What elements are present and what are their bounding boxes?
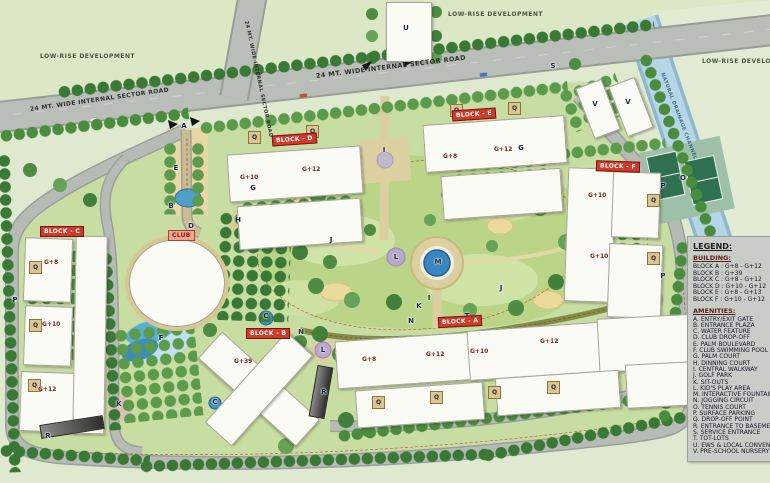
drop-off-pad: Q — [647, 194, 660, 207]
height-label: G+12 — [302, 166, 320, 173]
tree-row-boulevard-right — [192, 143, 205, 215]
low-rise-label-left: LOW-RISE DEVELOPMENT — [40, 53, 135, 60]
amenity-marker: O — [678, 173, 688, 183]
amenity-marker: G — [516, 143, 526, 153]
drop-off-pad: Q — [488, 386, 501, 399]
height-label: G+10 — [588, 192, 606, 199]
badge-block-f: BLOCK - F — [596, 160, 640, 173]
height-label: G+12 — [426, 351, 444, 358]
amenity-marker: C — [261, 311, 271, 321]
amenity-marker: V — [590, 99, 600, 109]
height-label: G+8 — [44, 259, 58, 266]
block-c-building-2 — [23, 305, 73, 367]
amenity-marker: R — [319, 387, 329, 397]
amenity-marker: S — [548, 61, 558, 71]
badge-club: CLUB — [168, 230, 195, 241]
height-label: G+8 — [443, 153, 457, 160]
amenity-marker: K — [414, 301, 424, 311]
amenity-marker: M — [433, 257, 443, 267]
club-building — [129, 239, 225, 327]
amenity-marker: E — [171, 163, 181, 173]
block-d-building-2 — [237, 198, 364, 251]
legend-building-item: BLOCK F : G+10 - G+12 — [693, 297, 767, 304]
low-rise-label-top: LOW-RISE DEVELOPMENT — [448, 11, 543, 18]
low-rise-label-right: LOW-RISE DEVELOPMENT — [702, 58, 770, 65]
legend-building-heading: BUILDING: — [693, 254, 767, 262]
badge-block-c: BLOCK - C — [40, 226, 84, 237]
amenity-marker: R — [43, 431, 53, 441]
amenity-marker: L — [391, 252, 401, 262]
drop-off-pad: Q — [29, 319, 42, 332]
height-label: G+39 — [234, 358, 252, 365]
legend-panel: LEGEND: BUILDING: BLOCK A : G+8 - G+12BL… — [687, 236, 770, 462]
amenity-marker: I — [424, 293, 434, 303]
block-e-building-2 — [441, 168, 564, 220]
amenity-marker: N — [296, 327, 306, 337]
amenity-marker: G — [248, 183, 258, 193]
height-label: G+10 — [42, 321, 60, 328]
drop-off-pad: Q — [647, 252, 660, 265]
amenity-marker: H — [233, 215, 243, 225]
legend-building-list: BLOCK A : G+8 - G+12BLOCK B : G+39BLOCK … — [693, 264, 767, 304]
amenity-marker: P — [10, 295, 20, 305]
site-master-plan: LOW-RISE DEVELOPMENT LOW-RISE DEVELOPMEN… — [0, 0, 770, 483]
legend-amenities-heading: AMENITIES: — [693, 307, 767, 315]
height-label: G+12 — [38, 386, 56, 393]
amenity-marker: I — [379, 145, 389, 155]
amenity-marker: B — [166, 201, 176, 211]
amenity-marker: F — [156, 333, 166, 343]
drop-off-pad: Q — [547, 381, 560, 394]
height-label: G+12 — [540, 338, 558, 345]
drop-off-pad: Q — [508, 102, 521, 115]
amenity-marker: U — [401, 23, 411, 33]
drop-off-pad: Q — [372, 396, 385, 409]
amenity-marker: V — [623, 97, 633, 107]
amenity-marker: J — [326, 235, 336, 245]
drop-off-pad: Q — [430, 391, 443, 404]
height-label: G+8 — [362, 356, 376, 363]
amenity-marker: A — [179, 121, 189, 131]
height-label: G+10 — [590, 253, 608, 260]
legend-title: LEGEND: — [693, 242, 767, 251]
amenity-marker: C — [210, 397, 220, 407]
block-e-building-1 — [422, 115, 567, 173]
height-label: G+12 — [494, 146, 512, 153]
amenity-marker: P — [658, 271, 668, 281]
legend-amenities-list: A. ENTRY/EXIT GATEB. ENTRANCE PLAZAC. WA… — [693, 317, 767, 456]
block-c-building-4 — [72, 236, 107, 435]
amenity-marker: J — [496, 283, 506, 293]
height-label: G+10 — [240, 174, 258, 181]
amenity-marker: N — [406, 316, 416, 326]
drop-off-pad: Q — [248, 131, 261, 144]
drop-off-pad: Q — [29, 261, 42, 274]
amenity-marker: P — [658, 181, 668, 191]
height-label: G+10 — [470, 348, 488, 355]
amenity-marker: K — [114, 399, 124, 409]
badge-block-b: BLOCK - B — [246, 328, 290, 339]
legend-amenity-item: V. PRE-SCHOOL NURSERY — [693, 449, 767, 455]
amenity-marker: L — [318, 345, 328, 355]
badge-block-a: BLOCK - A — [438, 315, 483, 328]
